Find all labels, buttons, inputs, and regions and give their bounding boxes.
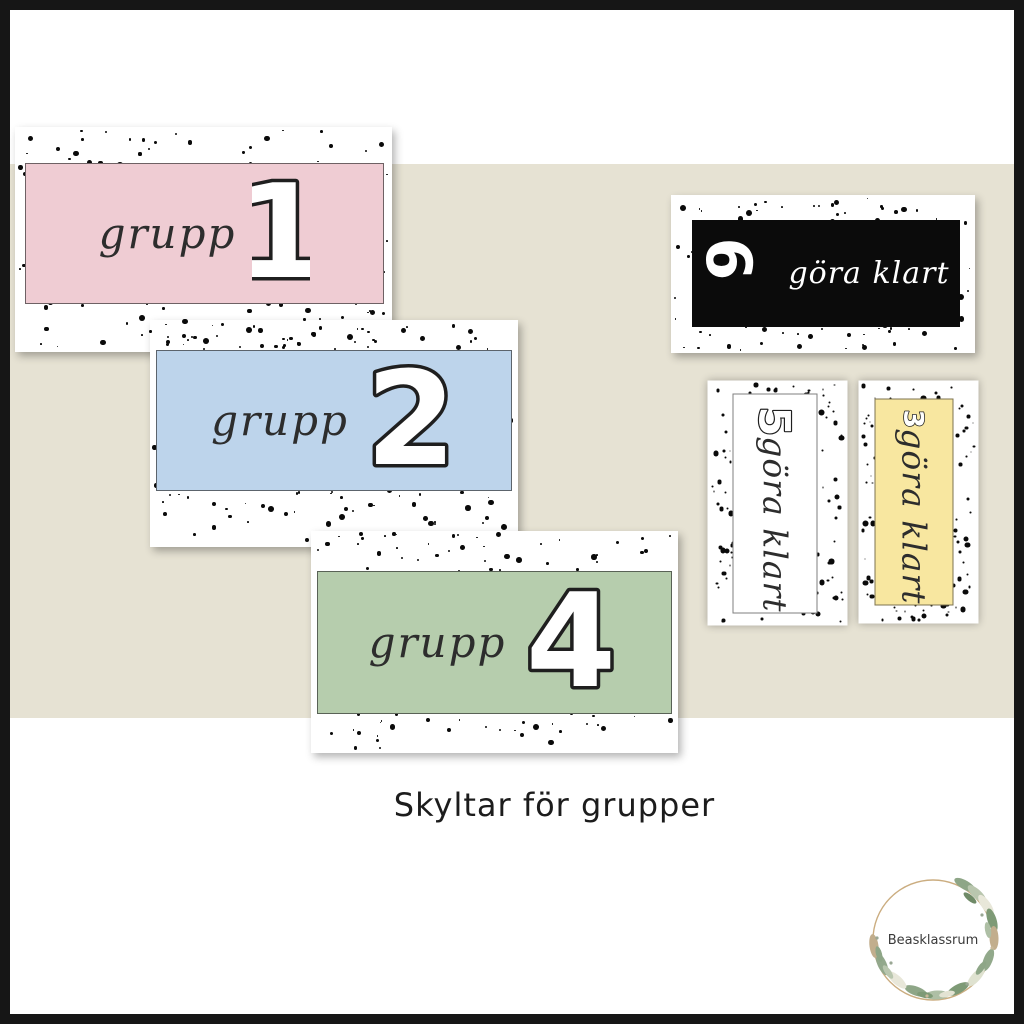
card-grupp-4-band: grupp 4 [317,571,672,714]
wreath-logo: Beasklassrum [853,868,1017,1020]
card-gora-klart-6-label: göra klart [784,220,954,327]
card-gora-klart-5: 5 göra klart [707,380,847,625]
card-gora-klart-3-label-wrap: göra klart [894,428,933,604]
card-gora-klart-5-label-wrap: göra klart [755,436,794,612]
poster-page: grupp 1 grupp 2 grupp 4 6 [0,0,1024,1024]
svg-text:4: 4 [526,576,616,710]
card-gora-klart-6: 6 göra klart [671,195,975,353]
svg-text:1: 1 [252,169,310,299]
logo-text: Beasklassrum [888,933,979,948]
page-title: Skyltar för grupper [10,786,1014,824]
bubble-number-1: 1 [252,169,310,299]
card-gora-klart-3-panel: 3 göra klart [874,398,953,605]
rotated-number-6: 6 [697,237,759,281]
bubble-number-4: 4 [522,576,620,710]
card-grupp-4: grupp 4 [311,531,678,753]
svg-text:6: 6 [697,237,759,280]
bubble-number-3: 3 [879,409,949,428]
svg-text:5: 5 [749,406,799,436]
card-gora-klart-6-band: 6 göra klart [692,220,960,327]
card-gora-klart-3: 3 göra klart [858,380,978,623]
card-grupp-1-band: grupp 1 [25,163,384,304]
svg-text:2: 2 [366,354,456,488]
card-grupp-4-label: grupp [369,618,507,667]
card-grupp-2-band: grupp 2 [156,350,512,491]
bubble-number-5: 5 [738,406,812,436]
card-grupp-1-label: grupp [99,209,237,258]
card-grupp-2-label: grupp [211,396,349,445]
card-gora-klart-5-label: göra klart [755,436,794,612]
card-grupp-1: grupp 1 [15,127,392,352]
card-grupp-2: grupp 2 [150,320,518,547]
bubble-number-2: 2 [365,354,457,488]
svg-text:3: 3 [897,409,928,428]
card-gora-klart-3-label: göra klart [894,428,933,604]
card-gora-klart-5-panel: 5 göra klart [732,393,817,613]
